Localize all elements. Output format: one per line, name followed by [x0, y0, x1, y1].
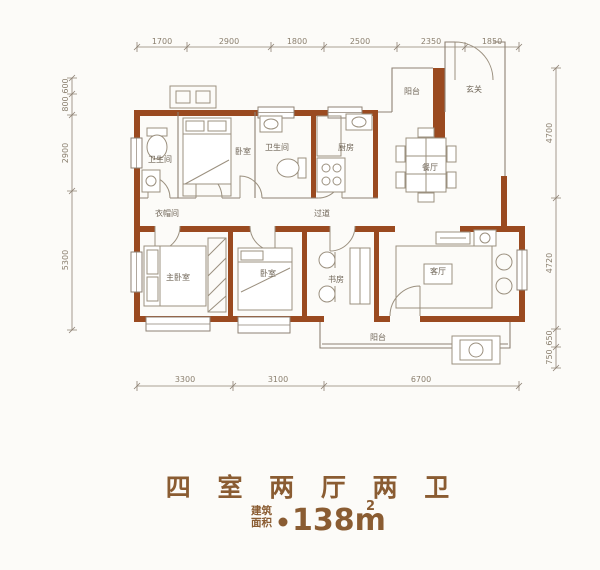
dim-left-3: 2900 — [61, 143, 70, 163]
label-kitchen: 厨房 — [338, 142, 354, 152]
dim-right-4: 750 — [545, 349, 554, 364]
dim-top-1: 1700 — [152, 37, 172, 46]
bed-icon — [183, 118, 231, 196]
tv-cabinet-icon — [436, 232, 470, 244]
toilet-icon — [277, 158, 306, 178]
label-dining: 餐厅 — [422, 163, 438, 172]
dim-bottom-3: 6700 — [411, 375, 431, 384]
sink-icon — [260, 116, 282, 132]
wall-bedroom2-study — [302, 226, 307, 322]
wall-study-living — [374, 226, 379, 322]
dim-left-2: 800 — [61, 96, 70, 111]
dimension-chain-left: 600 800 2900 5300 — [61, 75, 77, 333]
wall-right-upper — [501, 176, 507, 232]
area-prefix-line1: 建筑 — [250, 504, 272, 517]
wall-kitchen-left — [311, 112, 316, 198]
room-cloakroom: 衣帽间 — [155, 208, 179, 218]
wardrobe-icon — [208, 238, 226, 312]
area-prefix-line2: 面积 — [251, 516, 272, 529]
area-superscript: 2 — [366, 499, 375, 514]
label-master-bedroom: 主卧室 — [166, 272, 190, 282]
label-cloakroom: 衣帽间 — [155, 208, 179, 218]
stove-icon — [317, 158, 345, 192]
dimension-chain-right: 4700 4720 650 750 — [545, 65, 561, 371]
dim-left-1: 600 — [61, 78, 70, 93]
kitchen-sink-icon — [346, 114, 372, 130]
label-living: 客厅 — [430, 266, 446, 276]
study-door-arc — [330, 226, 355, 251]
wall-corridor-2 — [180, 226, 250, 232]
room-balcony-top: 阳台 — [404, 86, 420, 96]
washer-icon — [452, 336, 500, 364]
room-living: 客厅 — [396, 230, 512, 308]
ac-unit-icon — [474, 230, 496, 246]
label-study: 书房 — [328, 274, 344, 284]
room-entry: 玄关 — [466, 84, 482, 94]
sink-icon — [142, 170, 160, 192]
label-balcony-bottom: 阳台 — [370, 332, 386, 342]
plan-title: 四 室 两 厅 两 卫 — [166, 473, 459, 502]
bedroom2-door-arc — [250, 226, 275, 251]
wall-kitchen-right — [373, 112, 378, 198]
room-master-bedroom: 主卧室 — [144, 238, 226, 312]
plant-icon — [496, 254, 512, 294]
wall-bottom-living-a — [378, 316, 390, 322]
dim-bottom-1: 3300 — [175, 375, 195, 384]
sofa-rug-icon — [396, 246, 492, 308]
label-entry: 玄关 — [466, 84, 482, 94]
label-bathroom-2: 卫生间 — [265, 142, 289, 152]
label-balcony-top: 阳台 — [404, 86, 420, 96]
bath2-door-arc — [240, 176, 262, 198]
dim-top-4: 2500 — [350, 37, 370, 46]
title-block: 四 室 两 厅 两 卫 建筑 面积 138m 2 — [166, 473, 459, 538]
room-balcony-bottom: 阳台 — [370, 332, 386, 342]
room-kitchen: 厨房 — [317, 114, 372, 192]
balcony-door-arc — [390, 286, 420, 316]
entry-door-arc — [455, 42, 493, 80]
label-bedroom-top: 卧室 — [235, 146, 251, 156]
dimension-chain-top: 1700 2900 1800 2500 2350 1850 — [134, 37, 522, 52]
ac-platform-top — [170, 86, 216, 108]
area-bullet — [279, 518, 288, 527]
dim-top-3: 1800 — [287, 37, 307, 46]
dim-right-1: 4700 — [545, 123, 554, 143]
room-corridor: 过道 — [314, 208, 330, 218]
room-bathroom-2: 卫生间 — [260, 116, 306, 178]
room-bedroom-top: 卧室 — [183, 118, 251, 196]
room-bedroom-2: 卧室 — [238, 248, 292, 310]
wall-master-bedroom2 — [228, 226, 233, 322]
dimension-chain-bottom: 3300 3100 6700 — [134, 375, 522, 391]
dim-right-3: 650 — [545, 330, 554, 345]
dim-left-4: 5300 — [61, 250, 70, 270]
room-dining: 餐厅 — [396, 128, 456, 202]
dim-right-2: 4720 — [545, 253, 554, 273]
floor-plan: 1700 2900 1800 2500 2350 1850 3300 3100 … — [0, 0, 600, 570]
room-bathroom-1: 卫生间 — [142, 128, 172, 192]
room-study: 书房 — [319, 248, 370, 304]
bed2-icon — [238, 248, 292, 310]
dim-top-5: 2350 — [421, 37, 441, 46]
dim-bottom-2: 3100 — [268, 375, 288, 384]
label-bathroom-1: 卫生间 — [148, 154, 172, 164]
dim-top-2: 2900 — [219, 37, 239, 46]
wall-bottom-living-b — [420, 316, 525, 322]
desk-icon — [350, 248, 370, 304]
label-corridor: 过道 — [314, 208, 330, 218]
wall-corridor-1 — [134, 226, 155, 232]
label-bedroom-2: 卧室 — [260, 268, 276, 278]
